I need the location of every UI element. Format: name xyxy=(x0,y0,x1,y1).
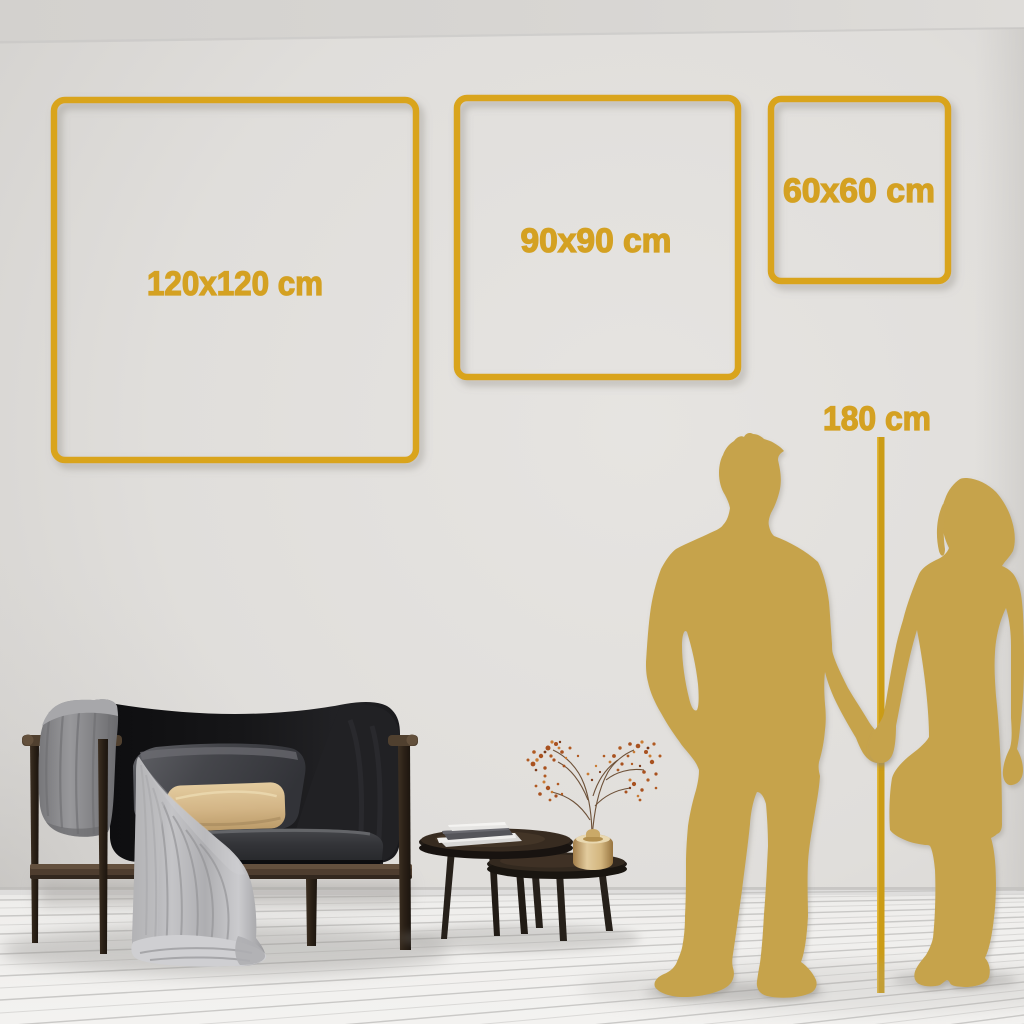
svg-text:90x90 cm: 90x90 cm xyxy=(521,222,672,260)
svg-text:120x120 cm: 120x120 cm xyxy=(147,265,323,303)
svg-text:180 cm: 180 cm xyxy=(823,400,931,438)
svg-text:60x60 cm: 60x60 cm xyxy=(783,172,935,210)
